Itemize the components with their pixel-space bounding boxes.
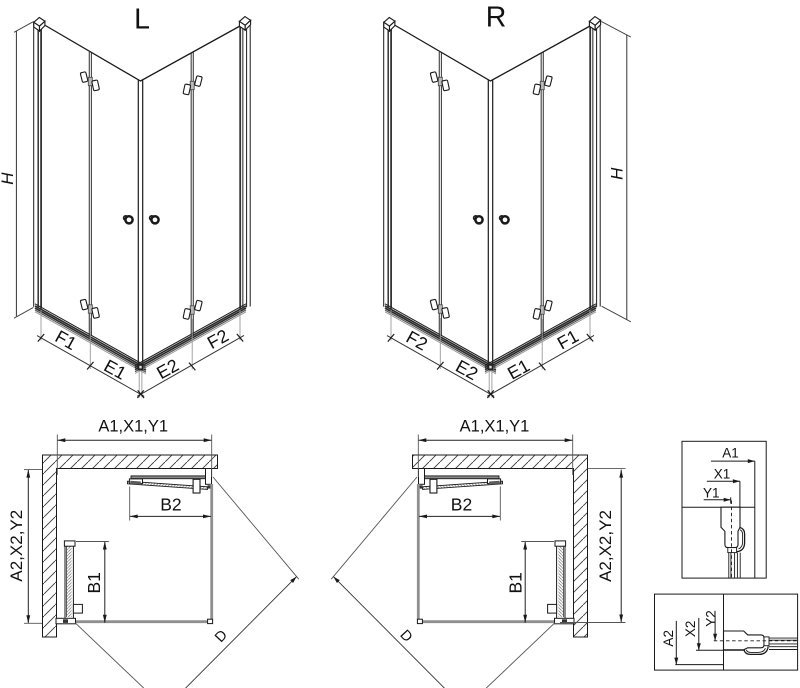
svg-text:Y2: Y2 — [703, 610, 718, 627]
svg-text:X1: X1 — [714, 466, 731, 481]
svg-text:H: H — [0, 172, 17, 185]
svg-text:A1,X1,Y1: A1,X1,Y1 — [98, 418, 168, 436]
svg-text:Y1: Y1 — [703, 485, 720, 500]
svg-text:A1,X1,Y1: A1,X1,Y1 — [460, 418, 530, 436]
svg-text:H: H — [607, 167, 626, 180]
svg-text:A2,X2,Y2: A2,X2,Y2 — [596, 510, 615, 582]
svg-text:B2: B2 — [451, 495, 472, 515]
svg-text:A2: A2 — [661, 630, 676, 647]
svg-text:L: L — [134, 4, 150, 36]
svg-text:B2: B2 — [160, 495, 181, 515]
svg-text:R: R — [486, 2, 507, 34]
svg-text:B1: B1 — [84, 572, 104, 593]
svg-text:X2: X2 — [683, 621, 698, 638]
svg-text:A1: A1 — [722, 446, 739, 461]
svg-text:A2,X2,Y2: A2,X2,Y2 — [7, 510, 26, 582]
svg-text:B1: B1 — [506, 572, 526, 593]
